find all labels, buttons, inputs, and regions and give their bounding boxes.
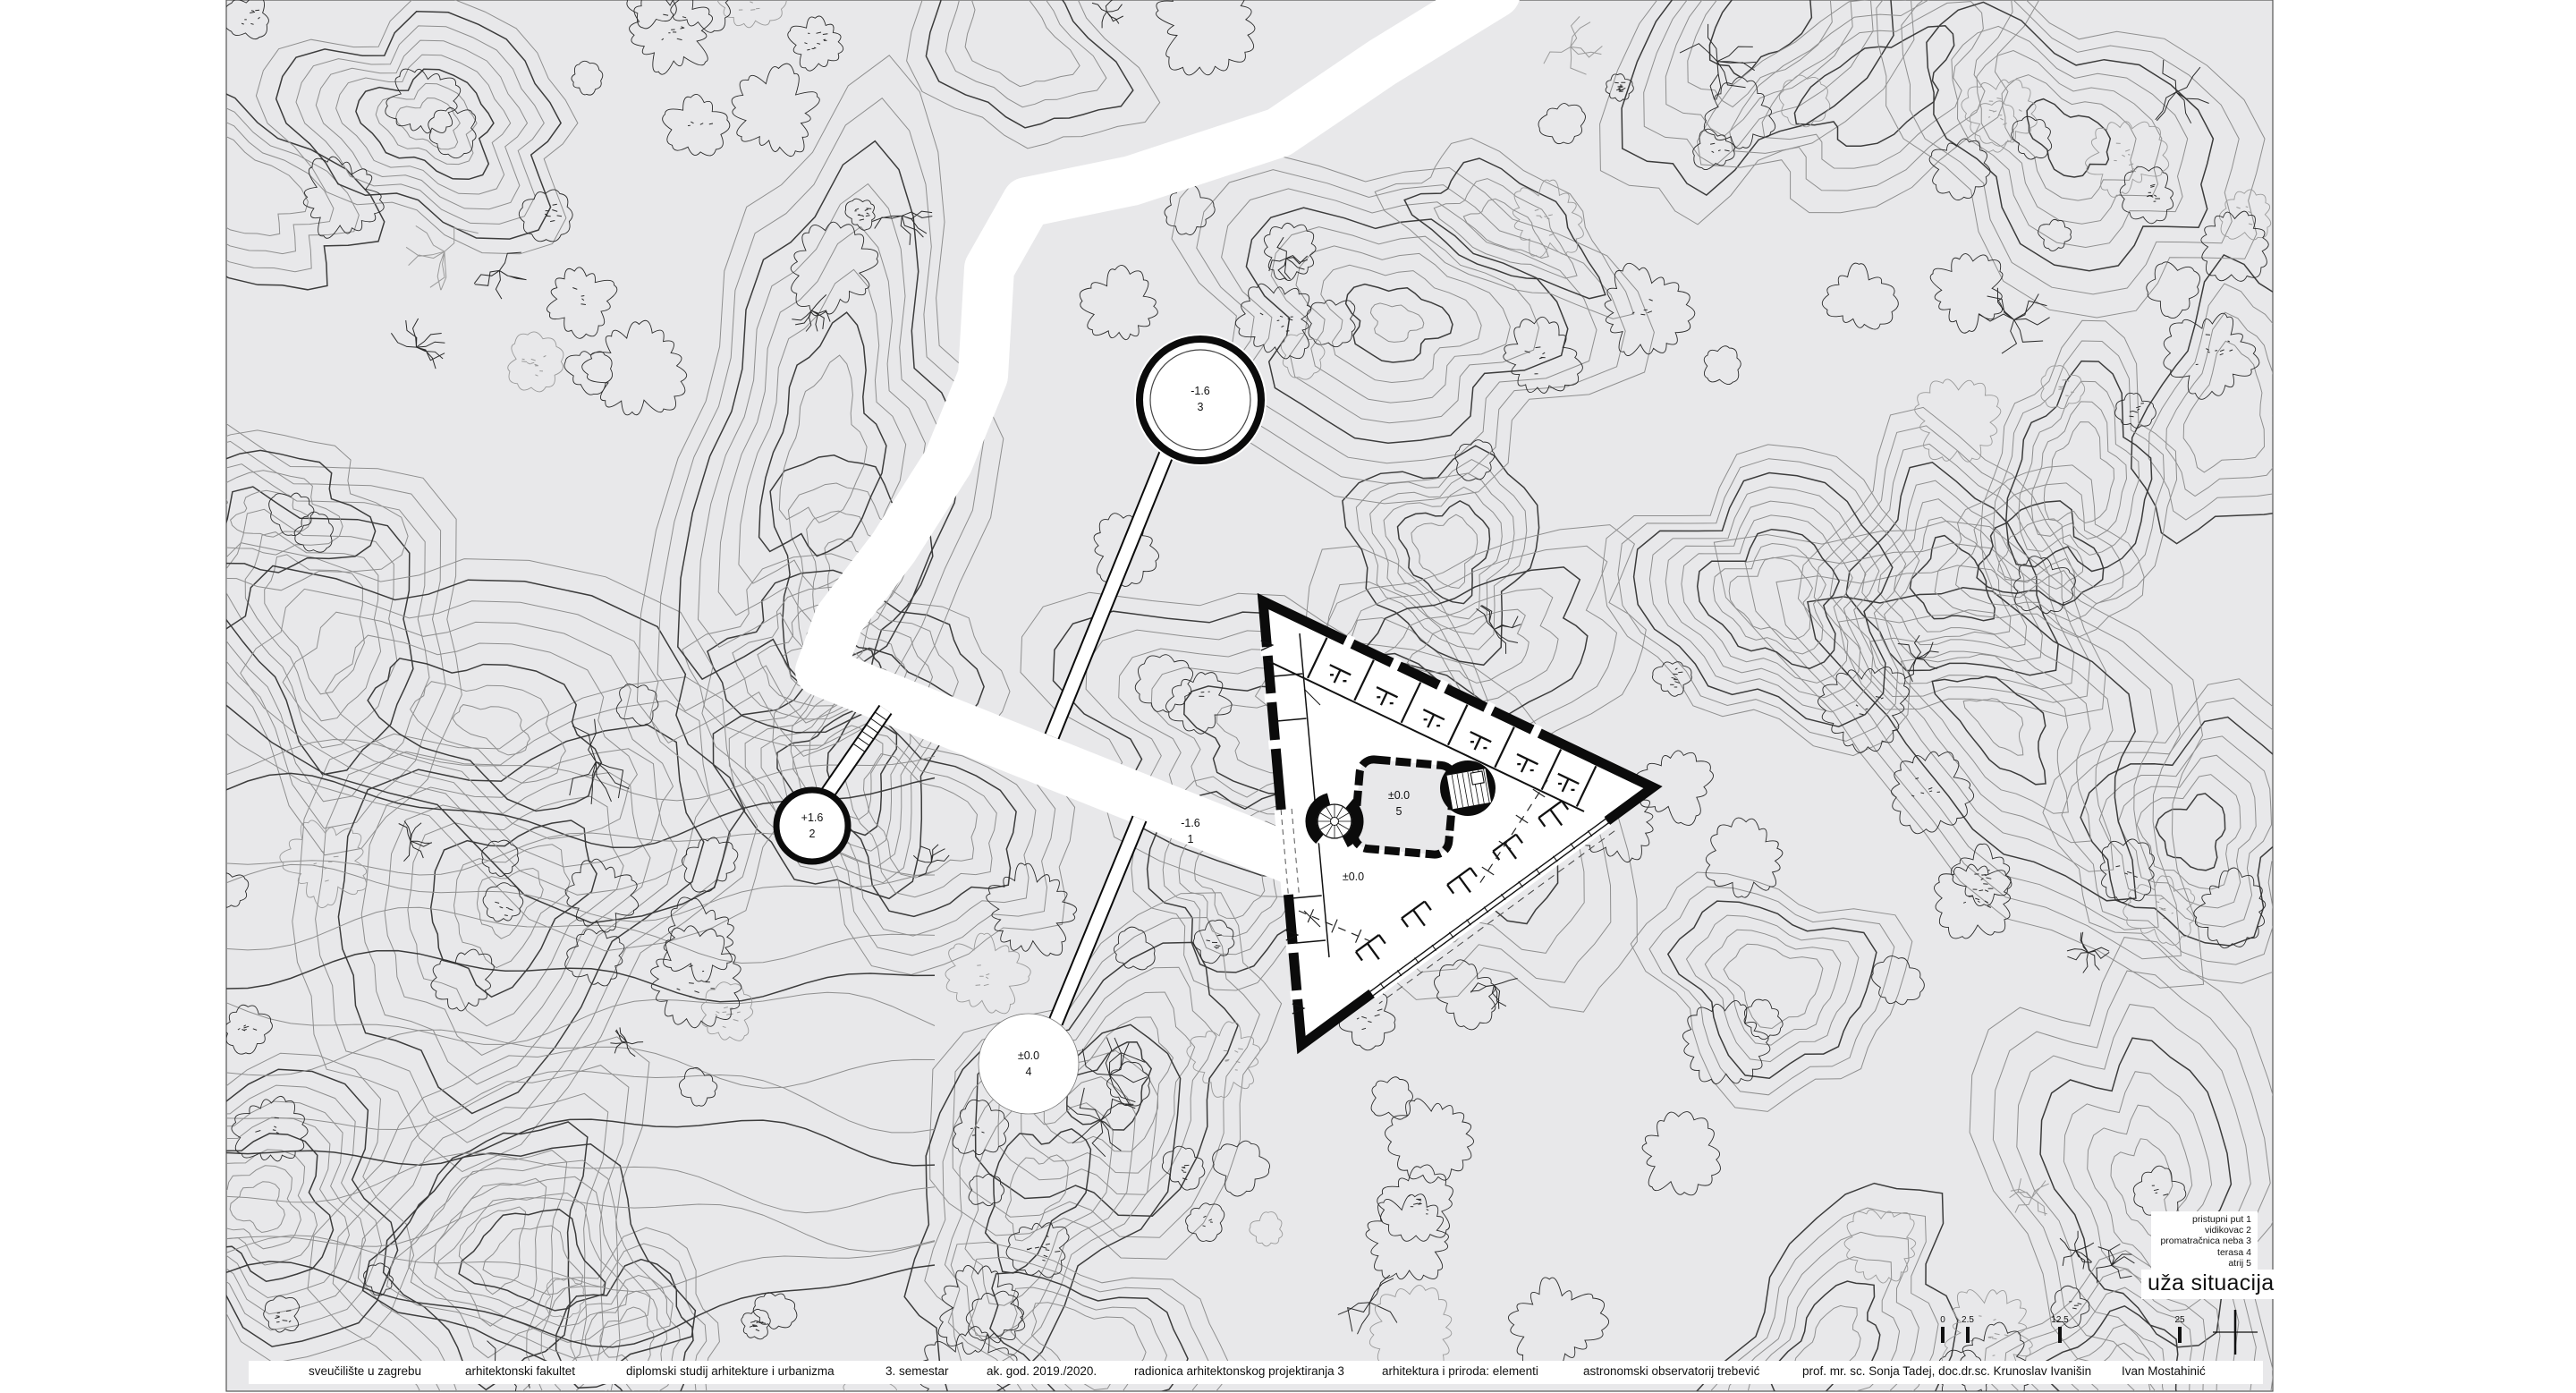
scale-tick-label: 12.5 <box>2051 1315 2069 1325</box>
site-plan-drawing: -1.63+1.62±0.04-1.61±0.05±0.002.512.525 <box>0 0 2576 1393</box>
drawing-title: uža situacija <box>2141 1270 2280 1299</box>
elevation-label: ±0.0 <box>1388 789 1410 802</box>
elevation-label: +1.6 <box>801 811 824 824</box>
elevation-label: -1.6 <box>1191 385 1210 397</box>
titlebar-item: radionica arhitektonskog projektiranja 3 <box>1134 1364 1344 1378</box>
elevation-label: 4 <box>1026 1066 1032 1078</box>
atrium-courtyard <box>1353 759 1455 856</box>
scale-tick <box>1966 1327 1970 1343</box>
sheet: -1.63+1.62±0.04-1.61±0.05±0.002.512.525 … <box>0 0 2576 1393</box>
titlebar-item: prof. mr. sc. Sonja Tadej, doc.dr.sc. Kr… <box>1802 1364 2091 1378</box>
main-stair <box>1440 760 1496 816</box>
title-bar: sveučilište u zagrebuarhitektonski fakul… <box>249 1361 2263 1384</box>
platform-terasa <box>979 1014 1079 1114</box>
titlebar-item: astronomski observatorij trebević <box>1583 1364 1759 1378</box>
elevation-label: ±0.0 <box>1343 871 1364 883</box>
elevation-label: 2 <box>809 828 816 840</box>
elevation-label: 3 <box>1198 401 1204 413</box>
scale-tick <box>1941 1327 1945 1343</box>
titlebar-item: diplomski studij arhitekture i urbanizma <box>626 1364 835 1378</box>
titlebar-item: Ivan Mostahinić <box>2122 1364 2206 1378</box>
elevation-label: ±0.0 <box>1018 1049 1039 1062</box>
titlebar-item: arhitektonski fakultet <box>465 1364 575 1378</box>
scale-tick-label: 25 <box>2174 1315 2185 1325</box>
scale-tick <box>2178 1327 2182 1343</box>
titlebar-item: ak. god. 2019./2020. <box>987 1364 1097 1378</box>
elevation-label: 1 <box>1188 833 1194 845</box>
scale-tick-label: 2.5 <box>1962 1315 1974 1325</box>
titlebar-item: 3. semestar <box>885 1364 949 1378</box>
spiral-stair <box>1308 794 1361 848</box>
scale-tick-label: 0 <box>1940 1315 1945 1325</box>
platform-vidikovac <box>776 790 848 862</box>
elevation-label: 5 <box>1396 805 1402 818</box>
scale-tick <box>2058 1327 2062 1343</box>
elevation-label: -1.6 <box>1181 817 1200 829</box>
platform-promatračnica-neba <box>1134 334 1267 466</box>
titlebar-item: arhitektura i priroda: elementi <box>1382 1364 1538 1378</box>
titlebar-item: sveučilište u zagrebu <box>309 1364 421 1378</box>
